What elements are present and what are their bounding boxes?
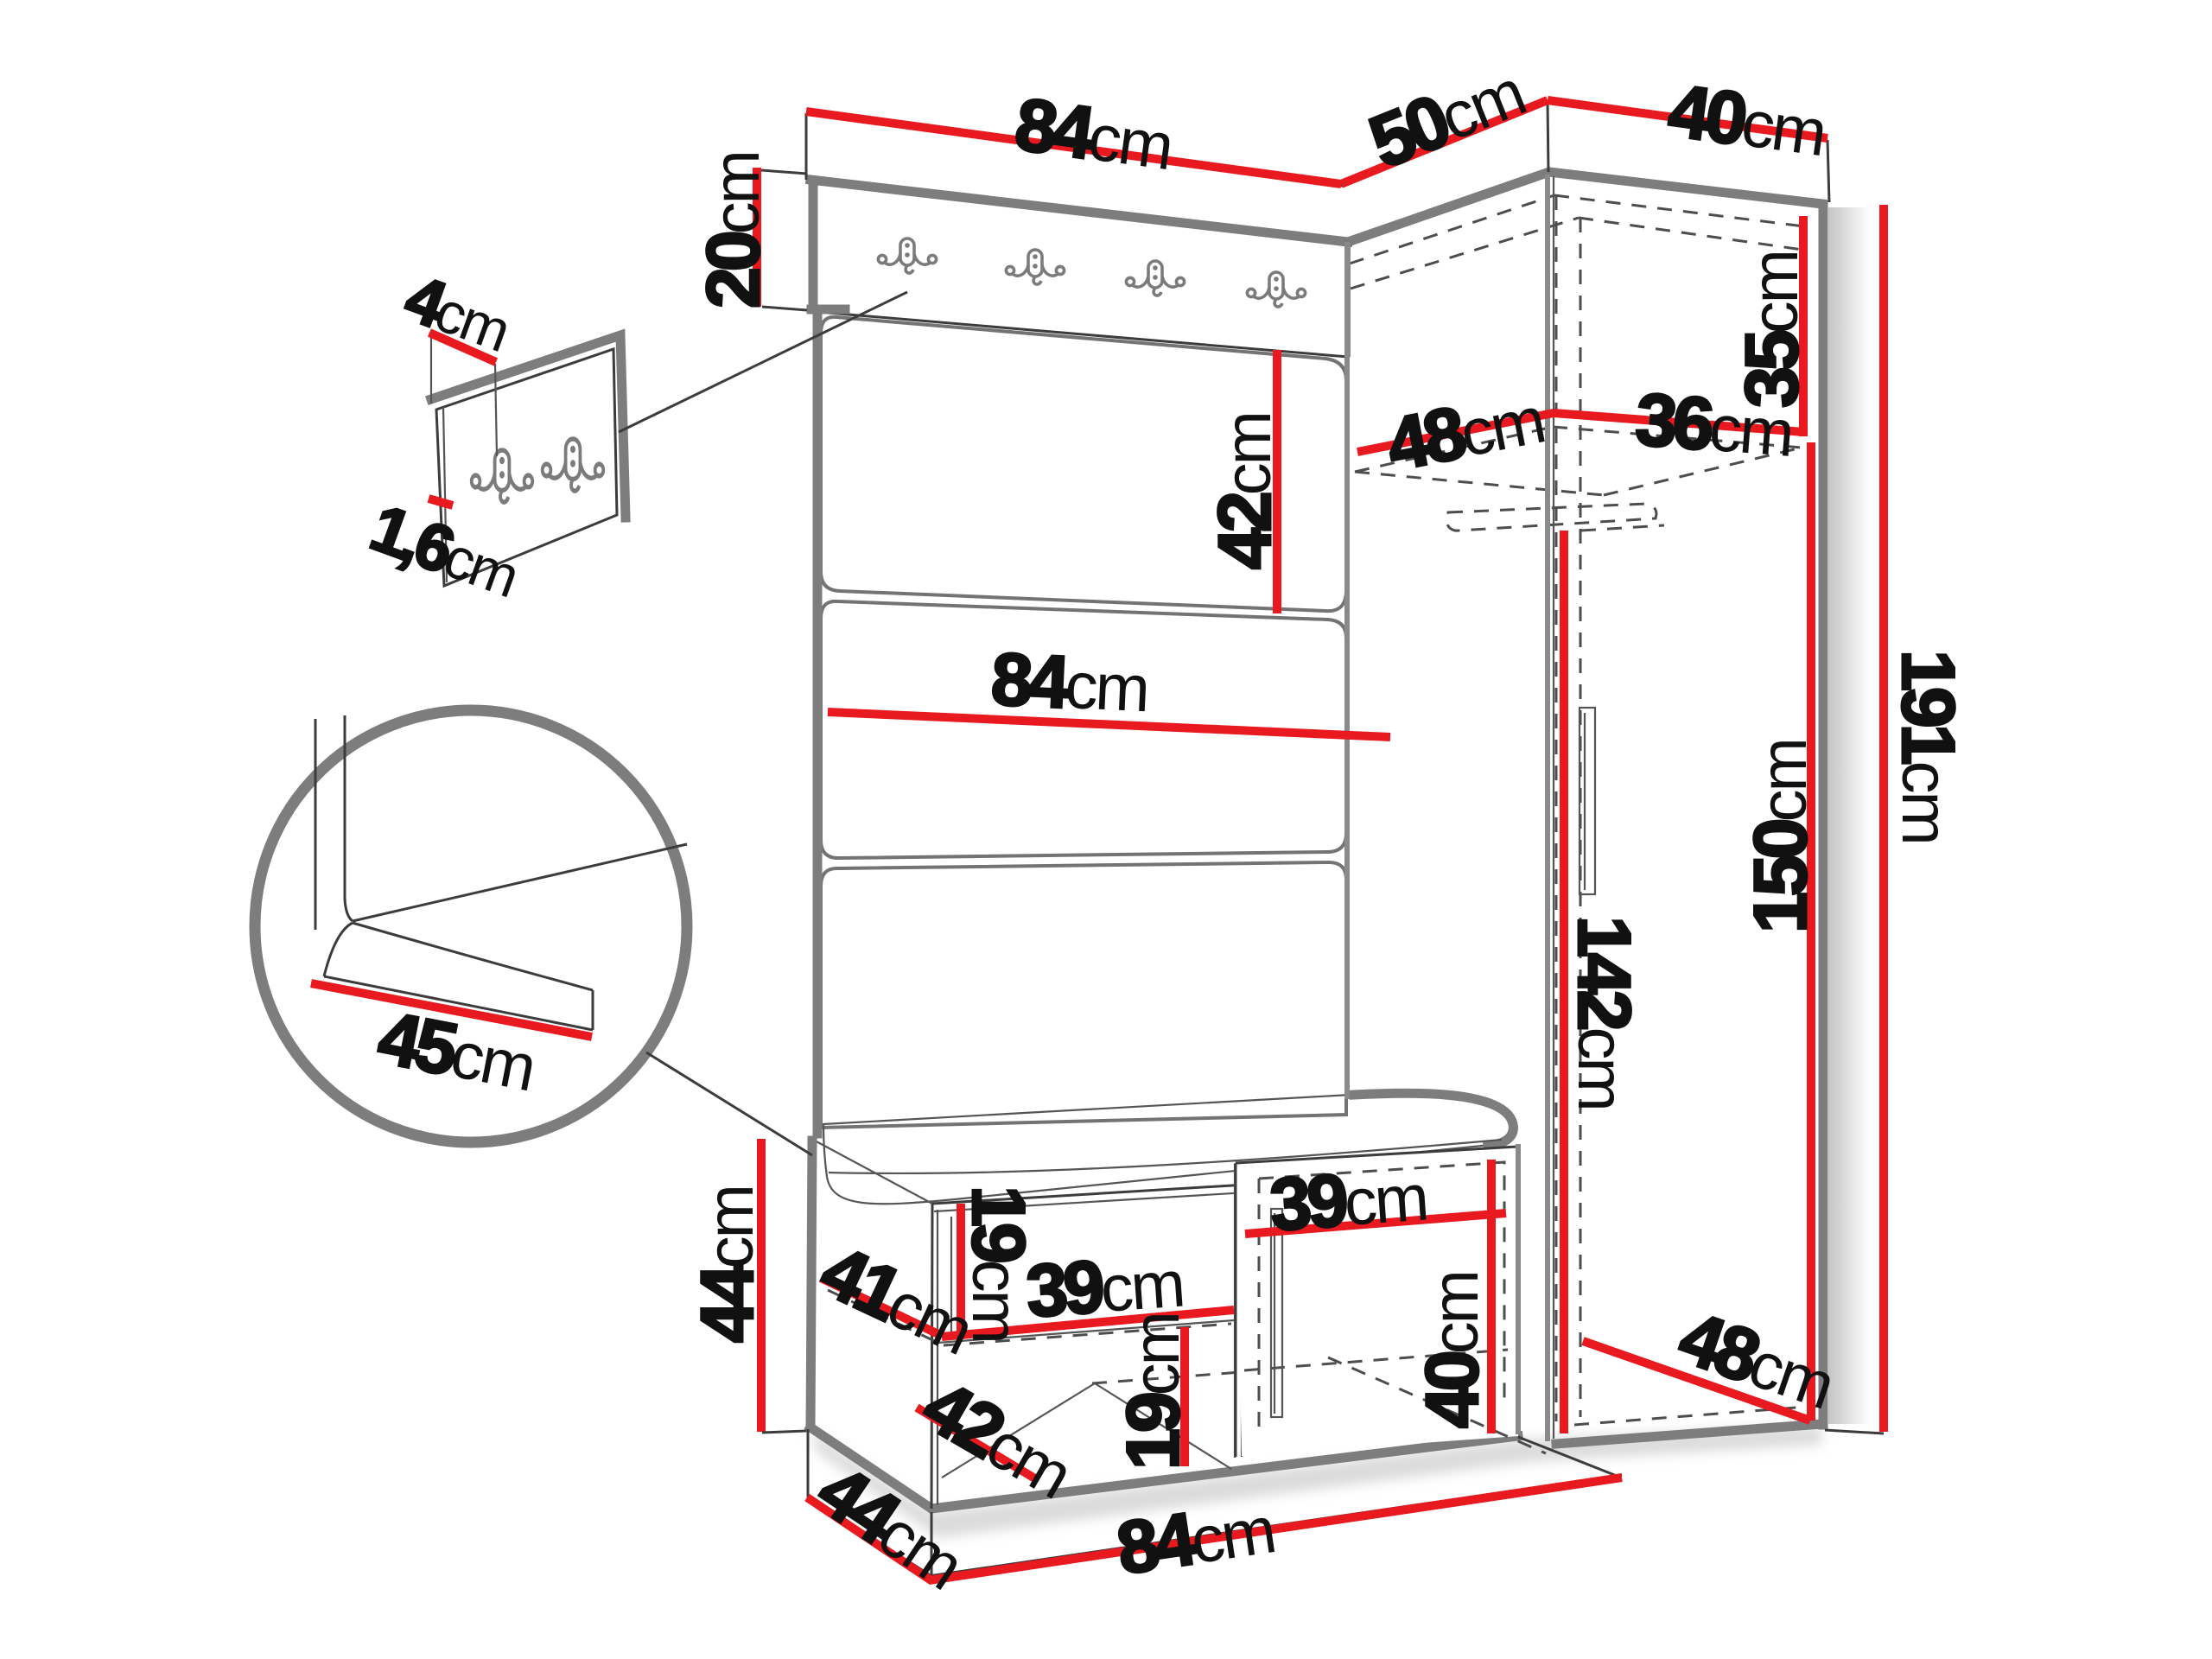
svg-text:19cm: 19cm bbox=[1112, 1313, 1195, 1470]
svg-text:142cm: 142cm bbox=[1562, 916, 1645, 1109]
svg-text:191cm: 191cm bbox=[1886, 650, 1969, 843]
svg-text:42cm: 42cm bbox=[1204, 413, 1287, 569]
svg-text:84cm: 84cm bbox=[989, 638, 1149, 728]
svg-text:20cm: 20cm bbox=[692, 152, 775, 308]
svg-text:35cm: 35cm bbox=[1731, 251, 1814, 408]
svg-text:150cm: 150cm bbox=[1739, 740, 1822, 933]
svg-text:44cm: 44cm bbox=[686, 1186, 769, 1343]
svg-text:39cm: 39cm bbox=[1268, 1154, 1429, 1247]
svg-text:40cm: 40cm bbox=[1411, 1272, 1494, 1428]
